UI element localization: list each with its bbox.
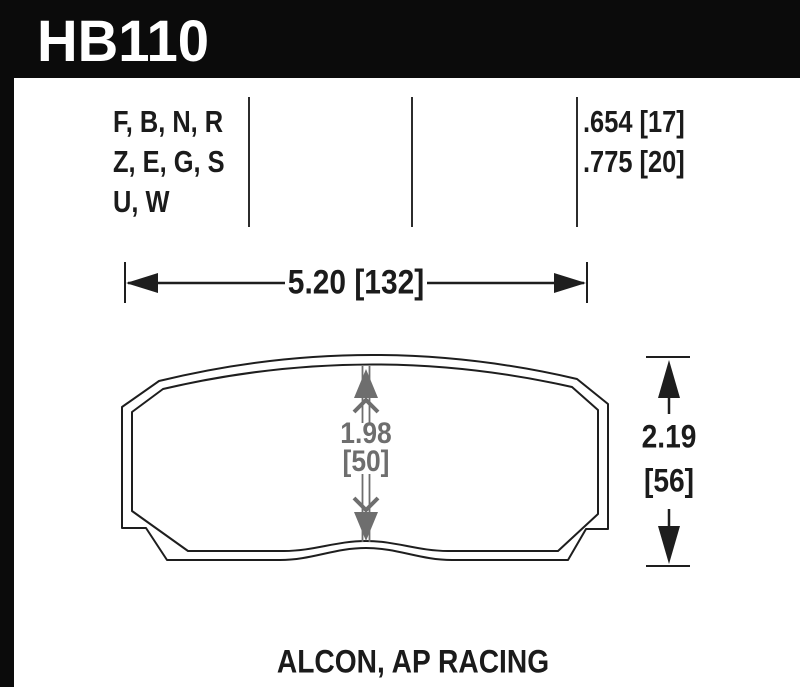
up-arrowhead-icon xyxy=(354,369,378,398)
caption: ALCON, AP RACING xyxy=(277,644,549,681)
overall-height-mm-label: [56] xyxy=(644,463,694,500)
up-chevron-icon xyxy=(354,400,378,412)
left-arrowhead-icon xyxy=(126,273,158,293)
width-dimension-label: 5.20 [132] xyxy=(288,264,424,303)
technical-drawing xyxy=(0,0,800,691)
right-arrowhead-icon xyxy=(554,273,586,293)
up-arrowhead-icon xyxy=(658,360,680,398)
center-height-mm-label: [50] xyxy=(343,445,390,479)
overall-height-dimension xyxy=(646,357,690,566)
down-chevron-icon xyxy=(354,498,378,510)
down-arrowhead-icon xyxy=(354,512,378,541)
overall-height-inches-label: 2.19 xyxy=(642,419,697,456)
brake-pad-spec-sheet: HB110 F, B, N, R Z, E, G, S U, W .654 [1… xyxy=(0,0,800,691)
down-arrowhead-icon xyxy=(658,526,680,564)
